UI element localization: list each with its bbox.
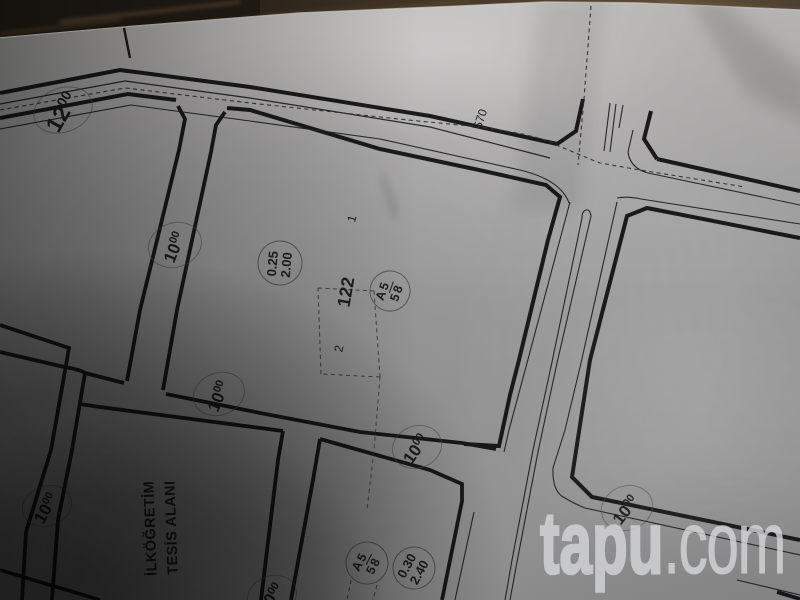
- svg-text:tapu.com: tapu.com: [540, 493, 785, 592]
